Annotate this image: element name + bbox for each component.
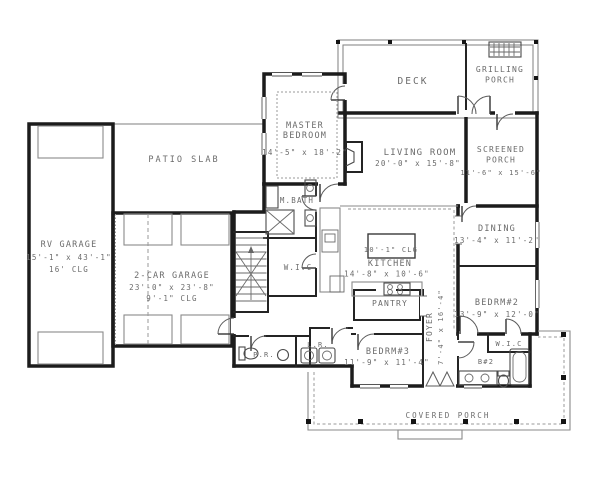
stairs (236, 238, 267, 301)
bath2-fixtures (459, 349, 529, 387)
master-bedroom-dims: 14'-5" x 18'-2" (262, 148, 348, 157)
bath2-label: B#2 (478, 358, 494, 366)
bedroom3-label: BEDRM#3 (366, 347, 410, 357)
wic-bedroom2-label: W.I.C (495, 340, 522, 348)
covered-porch-label: COVERED PORCH (406, 411, 491, 420)
master-bath-label: M.BATH (280, 196, 314, 205)
deck-label: DECK (398, 76, 429, 87)
grilling-porch-label2: PORCH (485, 76, 515, 85)
fireplace-icon (346, 142, 362, 172)
rv-garage-dims: 15'-1" x 43'-1" (26, 253, 112, 262)
foyer-dims: 7'-4" x 16'-4" (437, 289, 445, 365)
grill-icon (489, 42, 521, 57)
two-car-garage-ceiling: 9'-1" CLG (146, 294, 197, 303)
pantry-label: PANTRY (372, 299, 408, 308)
master-bedroom-label: MASTER (286, 121, 324, 131)
kitchen-dims: 14'-8" x 10'-6" (344, 270, 430, 279)
front-step (398, 430, 462, 439)
dining-dims: 13'-4" x 11'-2" (454, 236, 540, 245)
bedroom2-label: BEDRM#2 (475, 298, 519, 308)
living-room-label: LIVING ROOM (384, 148, 457, 158)
bedroom2-dims: 13'-9" x 12'-0" (454, 310, 540, 319)
dining-label: DINING (478, 224, 516, 234)
floor-plan-canvas: DECK GRILLING PORCH MASTER BEDROOM 14'-5… (0, 0, 600, 480)
living-room-dims: 20'-0" x 15'-8" (375, 159, 461, 168)
screened-porch-label: SCREENED (477, 145, 525, 154)
grilling-porch-label: GRILLING (476, 65, 524, 74)
wic-master-label: W.I.C (284, 263, 313, 272)
master-bedroom-label2: BEDROOM (283, 131, 327, 141)
screened-porch-dims: 11'-6" x 15'-6" (460, 169, 541, 177)
rv-garage-label: RV GARAGE (41, 240, 98, 250)
laundry-fixtures (301, 348, 335, 363)
bedroom3-dims: 11'-9" x 11'-4" (344, 358, 430, 367)
kitchen-island-clg-label: 10'-1" CLG (364, 246, 418, 254)
patio-slab-outline (113, 124, 264, 213)
foyer-label: FOYER (425, 312, 434, 342)
laundry-room-label: L.R. (307, 341, 329, 349)
kitchen-label: KITCHEN (368, 259, 412, 269)
powder-room-label: P.R. (253, 351, 275, 359)
screened-porch-label2: PORCH (486, 156, 516, 165)
patio-label: PATIO SLAB (148, 155, 219, 165)
floor-plan-drawing: DECK GRILLING PORCH MASTER BEDROOM 14'-5… (0, 0, 600, 480)
master-bath-fixtures (266, 180, 316, 234)
two-car-garage-dims: 23'-0" x 23'-8" (129, 283, 215, 292)
two-car-garage-label: 2-CAR GARAGE (134, 271, 210, 281)
rv-garage-ceiling: 16' CLG (49, 265, 89, 274)
